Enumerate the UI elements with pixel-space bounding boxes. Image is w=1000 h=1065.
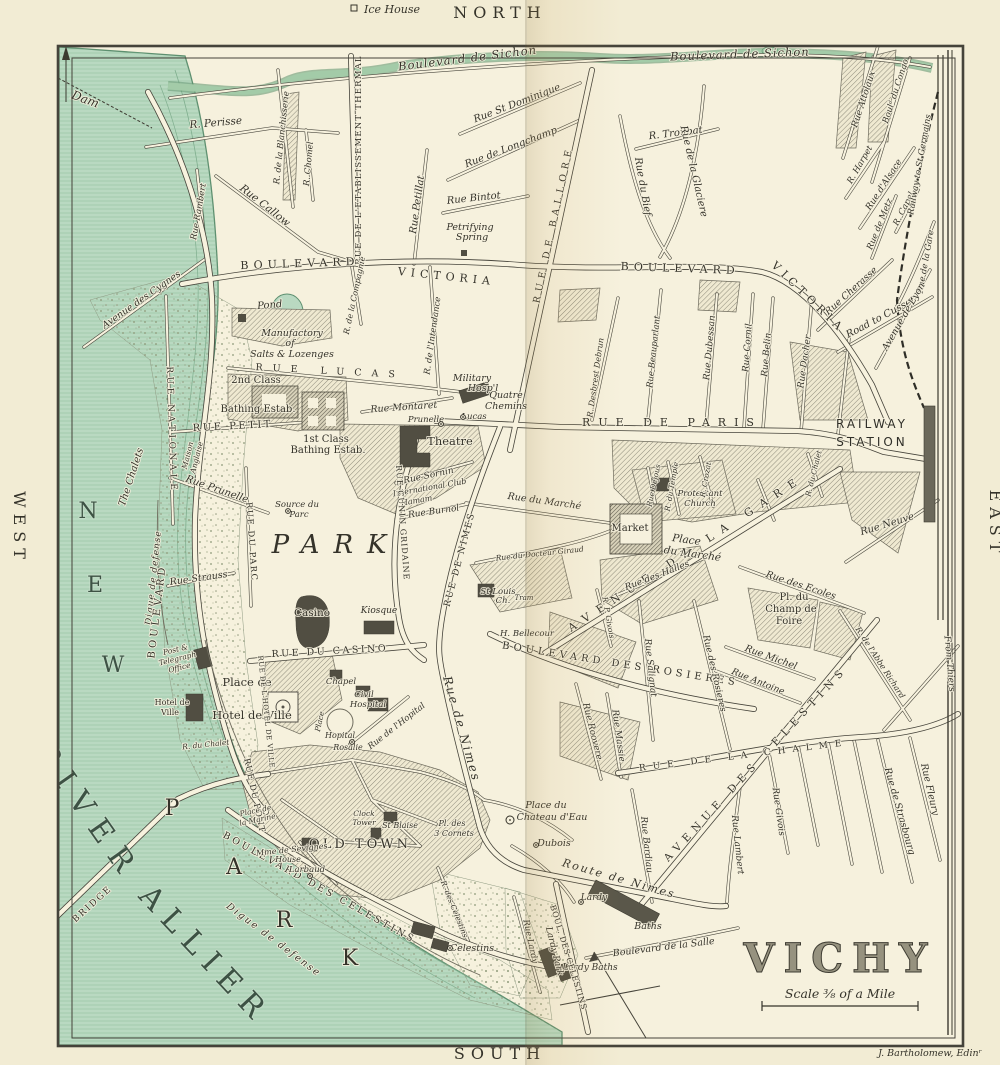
label-hospital: Hospital	[349, 700, 387, 710]
casino-building	[296, 596, 330, 649]
label-hopital: Hopital	[324, 731, 355, 740]
map-canvas: RIVERALLIERSichonDamPondNEWPARKPARKBRIDG…	[0, 0, 1000, 1065]
scale-label: Scale ⅜ of a Mile	[785, 986, 895, 1001]
first-class-baths	[302, 392, 344, 430]
label-foire: Foire	[776, 616, 802, 627]
label-pl-des: Pl. des	[438, 819, 466, 828]
label-casino: Casino	[294, 607, 330, 619]
label-pl-du: Pl. du	[779, 592, 809, 603]
fold-crease	[526, 0, 622, 1065]
label-civil: Civil	[354, 690, 374, 700]
label-hotel-de: Hotel de	[155, 698, 190, 707]
label-spring: Spring	[456, 232, 488, 243]
label-of: of	[285, 338, 296, 349]
label-church: Church	[684, 499, 716, 509]
label-salts-lozenges: Salts & Lozenges	[250, 349, 334, 360]
label-source-du: Source du	[275, 500, 319, 510]
label-theatre: Theatre	[427, 434, 473, 448]
label-champ-de: Champ de	[765, 604, 817, 615]
label-kiosque: Kiosque	[360, 606, 398, 616]
petrifying-spring	[461, 250, 467, 256]
manufactory-annex	[238, 314, 246, 322]
label-baths: Baths	[633, 921, 662, 932]
label-pond: Pond	[256, 299, 283, 312]
label-chemins: Chemins	[485, 401, 527, 412]
source-celestins	[448, 946, 453, 951]
label-a: A	[225, 855, 243, 880]
label-r: R	[276, 908, 294, 933]
source-prunelle	[439, 422, 444, 427]
label-ch: Ch.	[496, 596, 511, 606]
label-chapel: Chapel	[326, 677, 357, 687]
label-station: STATION	[836, 435, 908, 449]
source-du-parc	[286, 509, 291, 514]
label-w: W	[102, 653, 125, 678]
label-house: House	[274, 855, 301, 864]
label-k: K	[342, 946, 359, 971]
label-hotel-de-ville: Hotel de Ville	[212, 708, 292, 722]
label-railway: RAILWAY	[836, 417, 908, 431]
source-larbaud	[308, 874, 313, 879]
label-celestins: Celestins	[450, 943, 494, 954]
label-parc: Parc	[288, 510, 308, 520]
label-tower: Tower	[352, 818, 376, 827]
cartographer-credit: J. Bartholomew, Edinʳ	[876, 1048, 983, 1059]
map-title: VICHY	[743, 935, 937, 982]
label-e: E	[87, 573, 103, 598]
label-rosalie: Rosalie	[332, 743, 363, 752]
station-platform	[924, 406, 935, 522]
source-lucas	[461, 415, 466, 420]
label-st-blaise: St Blaise	[382, 821, 418, 830]
label-n: N	[78, 499, 97, 524]
vintage-map-vichy: RIVERALLIERSichonDamPondNEWPARKPARKBRIDG…	[0, 0, 1000, 1065]
label-larbaud: Larbaud	[288, 865, 326, 875]
label-3-cornets: 3 Cornets	[434, 829, 474, 838]
label-clock: Clock	[353, 809, 375, 818]
compass-west: WEST	[10, 491, 29, 565]
label-bathing-estab: Bathing Estab.	[221, 404, 296, 415]
kiosque-building	[364, 621, 394, 634]
label-park-main: PARK	[271, 530, 401, 560]
source-rosalie	[350, 740, 355, 745]
label-ville: Ville	[160, 708, 179, 717]
chateau-d-eau	[506, 816, 514, 824]
label-2nd-class: 2nd Class	[231, 375, 280, 386]
label-p: P	[165, 796, 180, 821]
label-rue-de-l-etablissement-thermal: RUE DE L'ETABLISSEMENT THERMAL	[354, 55, 364, 265]
label-quatre: Quatre	[489, 390, 523, 401]
label-bathing-estab: Bathing Estab.	[291, 445, 366, 456]
ice-house-label: Ice House	[363, 3, 420, 16]
compass-east: EAST	[986, 490, 1000, 559]
label-1st-class: 1st Class	[303, 434, 349, 445]
